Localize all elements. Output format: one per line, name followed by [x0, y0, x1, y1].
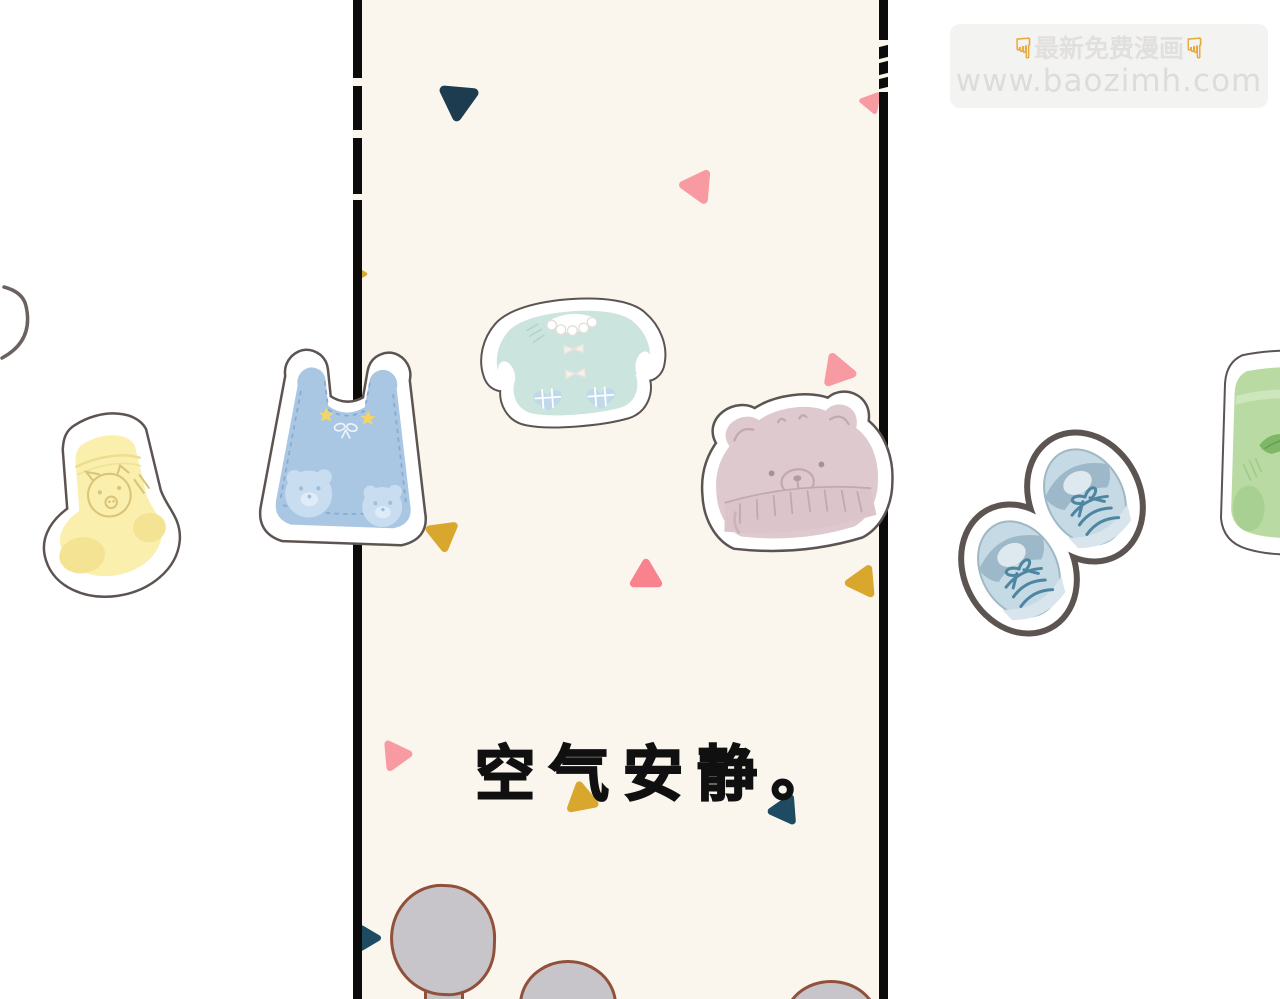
panel-border-right [879, 45, 888, 59]
watermark-title: ☟ 最新免费漫画 ☟ [1015, 34, 1203, 65]
blue-sneakers-sticker [955, 427, 1150, 637]
hand-down-icon: ☟ [1015, 34, 1032, 65]
yellow-sock-sticker [14, 399, 209, 616]
watermark-url: www.baozimh.com [956, 64, 1263, 98]
watermark: ☟ 最新免费漫画 ☟ www.baozimh.com [950, 24, 1268, 108]
panel-border-left [353, 200, 362, 999]
blue-overall-dress-sticker [255, 347, 438, 553]
green-garment-sticker [1214, 348, 1280, 558]
hand-down-icon: ☟ [1186, 34, 1203, 65]
pink-bear-beanie-sticker [690, 383, 901, 562]
panel-border-right [879, 61, 888, 75]
triangle-gold-mid-right [839, 561, 880, 602]
caption-text: 空气安静。 [475, 726, 845, 813]
panel-border-left [353, 138, 362, 194]
panel-border-left [353, 86, 362, 130]
comic-page: 空气安静。 ☟ 最新免费漫画 ☟ www.baozimh.com [0, 0, 1280, 999]
panel-border-left [353, 0, 362, 78]
triangle-pink-upper [673, 164, 716, 207]
triangle-navy-top [433, 78, 483, 128]
partial-sticker-corner [0, 286, 50, 364]
panel-border-right [879, 0, 888, 40]
mint-baby-shirt-sticker [475, 288, 675, 449]
watermark-title-text: 最新免费漫画 [1034, 35, 1184, 63]
triangle-pink-by-text [378, 735, 417, 774]
triangle-pink-mid [627, 555, 665, 593]
